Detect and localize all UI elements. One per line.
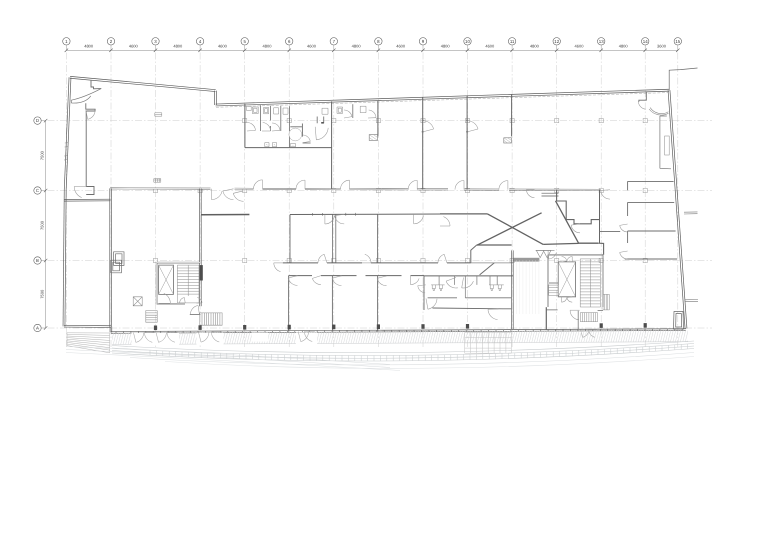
svg-text:7500: 7500 (39, 289, 44, 299)
svg-text:A: A (36, 326, 39, 331)
svg-text:4600: 4600 (396, 44, 406, 49)
svg-text:4600: 4600 (575, 44, 585, 49)
svg-text:D: D (36, 118, 39, 123)
svg-text:15: 15 (675, 39, 680, 44)
svg-text:10: 10 (465, 39, 470, 44)
svg-text:13: 13 (599, 39, 604, 44)
svg-text:11: 11 (510, 39, 515, 44)
svg-text:12: 12 (554, 39, 559, 44)
svg-text:4800: 4800 (441, 44, 451, 49)
svg-text:4600: 4600 (218, 44, 228, 49)
svg-text:4600: 4600 (307, 44, 317, 49)
svg-text:C: C (36, 188, 39, 193)
svg-text:4800: 4800 (173, 44, 183, 49)
svg-text:7500: 7500 (39, 150, 44, 160)
svg-text:4800: 4800 (619, 44, 629, 49)
svg-text:14: 14 (643, 39, 648, 44)
svg-text:3600: 3600 (657, 44, 667, 49)
svg-text:4800: 4800 (263, 44, 273, 49)
svg-text:4600: 4600 (485, 44, 495, 49)
svg-text:4800: 4800 (84, 44, 94, 49)
svg-text:4800: 4800 (530, 44, 540, 49)
svg-text:4600: 4600 (129, 44, 139, 49)
svg-text:7500: 7500 (39, 220, 44, 230)
svg-text:4800: 4800 (352, 44, 362, 49)
svg-text:B: B (36, 258, 39, 263)
